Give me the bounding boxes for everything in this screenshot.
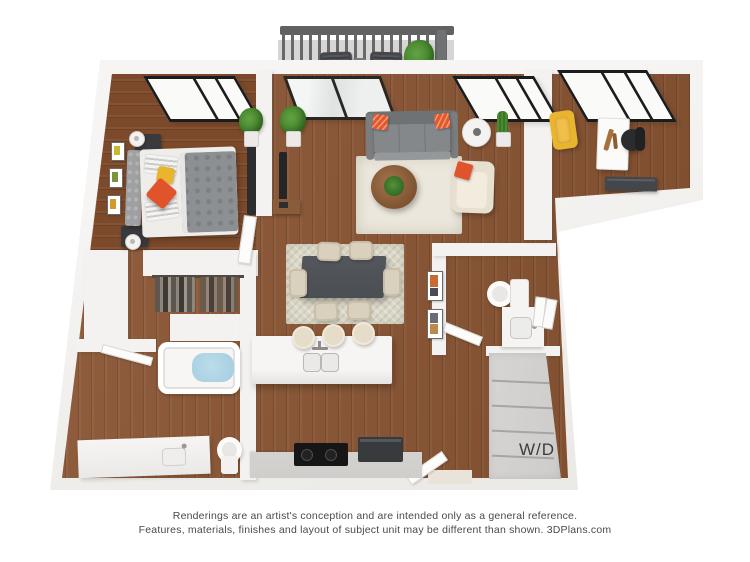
range-appliance bbox=[358, 437, 403, 462]
tv-console bbox=[273, 199, 300, 214]
bathtub-water bbox=[192, 353, 234, 382]
entry-threshold bbox=[428, 470, 472, 484]
wall-art bbox=[427, 271, 443, 301]
art-content bbox=[430, 275, 438, 287]
cabinet-shelf-line bbox=[492, 405, 554, 410]
art-content bbox=[430, 288, 438, 296]
table-lamp bbox=[129, 131, 145, 147]
bed-duvet bbox=[180, 151, 239, 233]
wall-art bbox=[107, 195, 121, 215]
vanity-faucet bbox=[182, 444, 187, 449]
burner bbox=[301, 449, 313, 461]
bedroom-tv bbox=[247, 142, 256, 215]
plant-pot bbox=[286, 131, 301, 147]
office-chair bbox=[621, 129, 643, 151]
wall-art bbox=[111, 142, 125, 161]
washer-dryer-label: W/D bbox=[519, 440, 569, 460]
wall-closet-bottom bbox=[170, 314, 247, 341]
sofa-pillow-orange bbox=[434, 112, 451, 129]
cabinet-shelf-line bbox=[492, 379, 554, 384]
cup bbox=[473, 128, 481, 136]
vanity-sink bbox=[510, 317, 532, 339]
table-plant bbox=[384, 176, 404, 196]
sofa-front-edge bbox=[374, 151, 450, 160]
window-mullion bbox=[331, 79, 348, 117]
cabinet-shelf-line bbox=[492, 430, 554, 435]
vanity-sink bbox=[162, 448, 187, 467]
window-mullion bbox=[516, 79, 542, 119]
closet-clothes bbox=[200, 277, 238, 312]
dining-chair bbox=[347, 301, 371, 320]
desk-accessory bbox=[612, 133, 618, 149]
art-content bbox=[430, 324, 438, 334]
toilet-seat bbox=[492, 286, 508, 302]
island-sink-basin bbox=[303, 353, 321, 372]
cooktop bbox=[294, 443, 348, 466]
art-content bbox=[110, 199, 116, 209]
console-edge bbox=[607, 179, 655, 182]
sofa-pillow-orange bbox=[372, 114, 389, 131]
range-edge bbox=[360, 439, 401, 442]
dining-chair bbox=[317, 242, 342, 262]
floorplan-rendering: W/D Renderings are an artist's conceptio… bbox=[0, 0, 750, 562]
sofa bbox=[366, 110, 459, 162]
toilet-base bbox=[221, 456, 238, 474]
coffee-table bbox=[371, 165, 417, 209]
toilet-tank bbox=[510, 279, 529, 309]
dining-chair bbox=[289, 269, 307, 297]
wall-halfbath-top bbox=[432, 243, 556, 256]
media-box bbox=[279, 202, 288, 208]
island-sink-basin bbox=[321, 353, 339, 372]
dining-chair bbox=[383, 268, 401, 296]
burner bbox=[325, 449, 337, 461]
bar-stool bbox=[352, 322, 375, 345]
window-mullion bbox=[600, 73, 630, 119]
art-content bbox=[430, 313, 438, 323]
bar-stool bbox=[292, 326, 315, 349]
bathtub bbox=[158, 342, 240, 394]
cactus-pot bbox=[496, 132, 511, 147]
dining-chair bbox=[314, 301, 339, 321]
window-mullion bbox=[624, 73, 654, 119]
chair-seam bbox=[554, 116, 571, 144]
table-lamp bbox=[125, 234, 141, 250]
plant-pot bbox=[244, 131, 259, 147]
island-faucet-neck bbox=[318, 341, 321, 348]
bathroom-vanity bbox=[77, 436, 210, 479]
sofa-arm bbox=[450, 112, 459, 158]
armchair bbox=[451, 160, 495, 213]
window-mullion bbox=[215, 79, 241, 119]
disclaimer-line-2: Features, materials, finishes and layout… bbox=[0, 523, 750, 537]
wall-chase bbox=[84, 250, 128, 346]
closet-clothes bbox=[155, 277, 195, 312]
office-chair-back bbox=[635, 127, 645, 151]
dining-chair bbox=[349, 241, 373, 260]
art-content bbox=[114, 146, 120, 155]
wall-art bbox=[427, 309, 443, 339]
office-console bbox=[605, 177, 657, 192]
side-table bbox=[462, 118, 491, 147]
living-tv bbox=[279, 152, 287, 201]
art-content bbox=[112, 172, 118, 182]
wall-art bbox=[109, 168, 123, 188]
bar-stool bbox=[322, 324, 345, 347]
dining-table bbox=[300, 256, 387, 298]
window-mullion bbox=[192, 79, 218, 119]
disclaimer-line-1: Renderings are an artist's conception an… bbox=[0, 509, 750, 523]
office-accent-chair bbox=[548, 109, 578, 150]
